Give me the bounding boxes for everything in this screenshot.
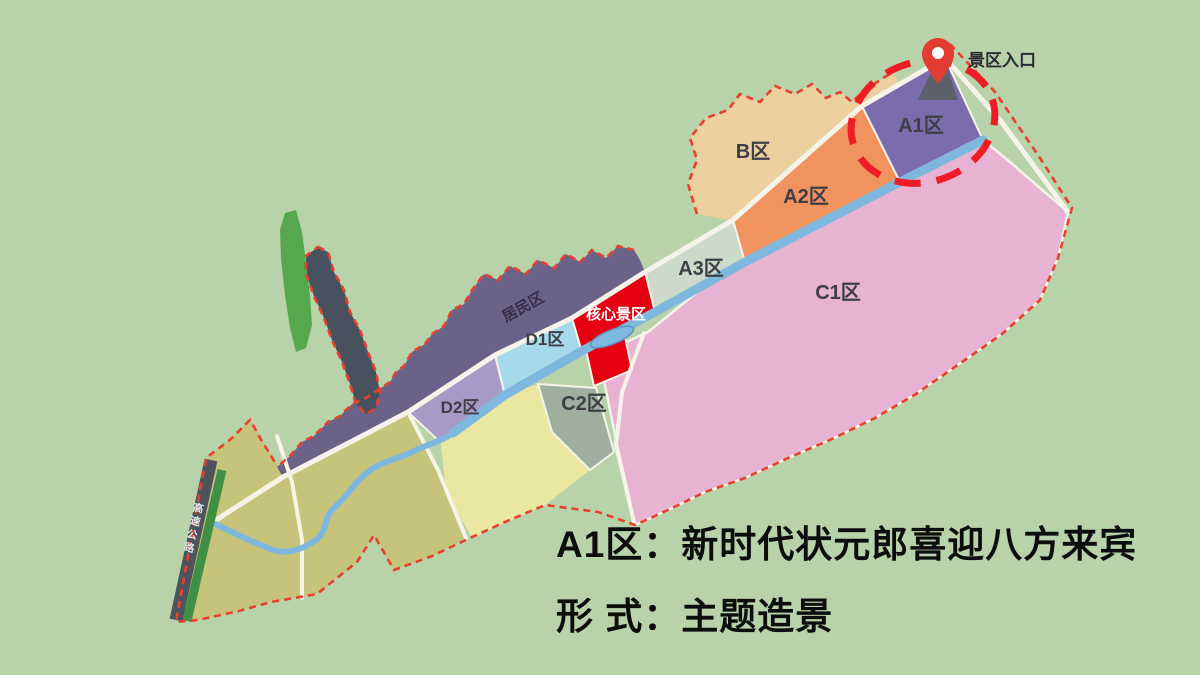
- zone-label-b: B区: [736, 141, 770, 163]
- zone-label-c1: C1区: [815, 282, 861, 304]
- zone-label-a3: A3区: [678, 258, 724, 280]
- location-pin-dot: [932, 47, 944, 59]
- zone-label-d2: D2区: [441, 398, 480, 417]
- zone-label-d1: D1区: [526, 330, 565, 349]
- caption-zone-theme: A1区：新时代状元郎喜迎八方来宾: [556, 514, 1137, 568]
- zone-label-c2: C2区: [561, 393, 607, 415]
- zone-label-core: 核心景区: [586, 305, 646, 323]
- entrance-label: 景区入口: [968, 51, 1036, 70]
- zone-label-a1: A1区: [898, 115, 944, 137]
- zone-label-a2: A2区: [783, 186, 829, 208]
- caption-form: 形 式：主题造景: [556, 586, 833, 640]
- slide-canvas: A1区 A2区 A3区 B区 C1区 C2区 D1区 D2区 核心景区 居民区 …: [0, 0, 1200, 675]
- scenic-area-map: A1区 A2区 A3区 B区 C1区 C2区 D1区 D2区 核心景区 居民区 …: [0, 0, 1200, 675]
